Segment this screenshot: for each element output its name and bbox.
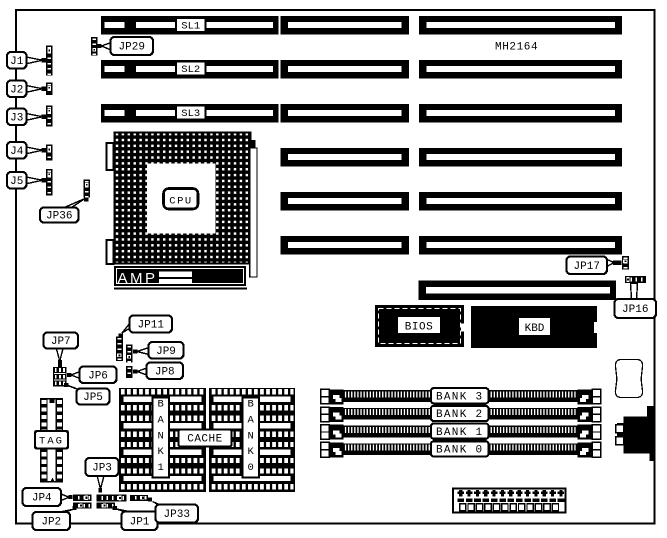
svg-text:JP7: JP7 xyxy=(51,336,71,348)
svg-text:BANK 2: BANK 2 xyxy=(436,409,483,421)
svg-text:J2: J2 xyxy=(10,84,23,96)
svg-text:SL1: SL1 xyxy=(181,21,200,33)
svg-text:BIOS: BIOS xyxy=(405,322,433,334)
svg-text:TAG: TAG xyxy=(39,435,64,447)
svg-text:KBD: KBD xyxy=(525,323,545,335)
svg-text:JP5: JP5 xyxy=(83,392,103,404)
svg-text:JP3: JP3 xyxy=(92,463,112,475)
svg-text:MH2164: MH2164 xyxy=(495,42,538,54)
svg-text:N: N xyxy=(158,430,164,442)
svg-text:B: B xyxy=(248,399,254,411)
svg-text:JP33: JP33 xyxy=(164,509,190,521)
svg-text:A: A xyxy=(248,414,255,426)
svg-text:CACHE: CACHE xyxy=(187,434,223,446)
svg-text:J4: J4 xyxy=(10,146,24,158)
svg-text:JP2: JP2 xyxy=(41,517,61,529)
svg-text:1: 1 xyxy=(158,462,164,474)
svg-text:AMP: AMP xyxy=(118,270,158,287)
svg-text:BANK 3: BANK 3 xyxy=(436,391,483,403)
svg-text:JP36: JP36 xyxy=(46,211,72,223)
svg-text:J5: J5 xyxy=(10,176,23,188)
svg-text:J1: J1 xyxy=(10,56,24,68)
svg-text:K: K xyxy=(248,446,255,458)
svg-text:CPU: CPU xyxy=(169,196,192,208)
svg-text:JP17: JP17 xyxy=(574,261,600,273)
svg-text:BANK 1: BANK 1 xyxy=(436,427,483,439)
svg-text:SL3: SL3 xyxy=(181,108,200,120)
svg-text:SL2: SL2 xyxy=(181,64,200,76)
svg-text:A: A xyxy=(158,414,165,426)
svg-text:JP16: JP16 xyxy=(622,304,648,316)
svg-text:JP29: JP29 xyxy=(119,42,145,54)
svg-text:JP9: JP9 xyxy=(156,346,176,358)
svg-text:B: B xyxy=(158,399,164,411)
svg-text:JP6: JP6 xyxy=(88,370,108,382)
svg-text:JP11: JP11 xyxy=(138,320,165,332)
svg-text:JP1: JP1 xyxy=(130,516,150,528)
svg-text:JP4: JP4 xyxy=(32,493,52,505)
svg-text:BANK 0: BANK 0 xyxy=(436,445,483,457)
svg-text:K: K xyxy=(158,446,165,458)
svg-text:N: N xyxy=(248,430,254,442)
svg-text:JP8: JP8 xyxy=(155,366,175,378)
svg-text:0: 0 xyxy=(248,462,254,474)
svg-text:J3: J3 xyxy=(10,112,23,124)
